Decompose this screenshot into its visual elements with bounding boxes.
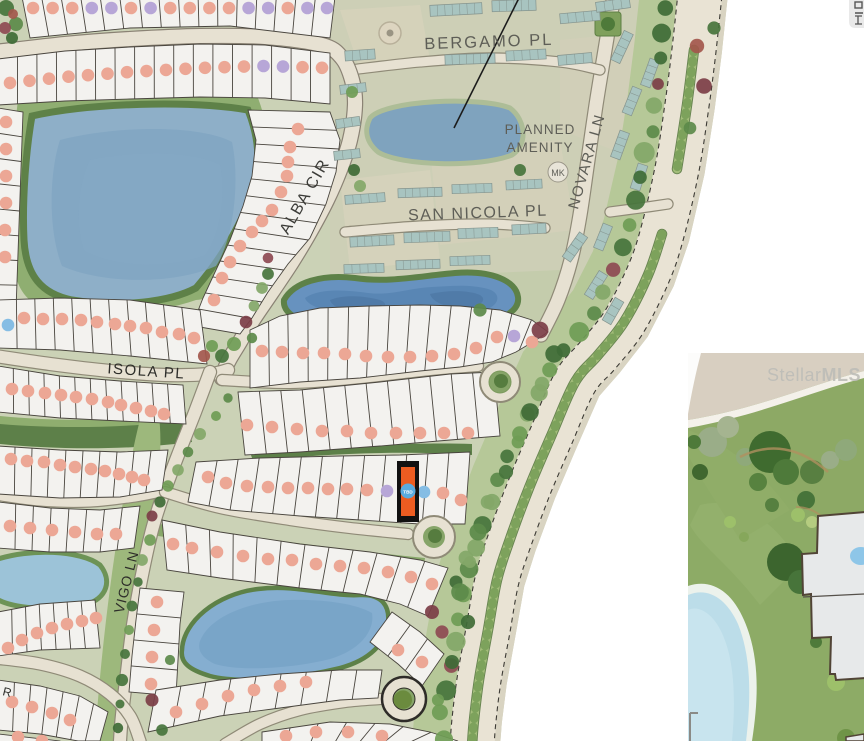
- svg-text:TBD: TBD: [403, 490, 413, 495]
- svg-text:StellarMLS: StellarMLS: [767, 365, 861, 385]
- svg-text:PLANNED: PLANNED: [505, 122, 576, 137]
- svg-text:MK: MK: [551, 168, 565, 178]
- svg-text:AMENITY: AMENITY: [506, 140, 573, 155]
